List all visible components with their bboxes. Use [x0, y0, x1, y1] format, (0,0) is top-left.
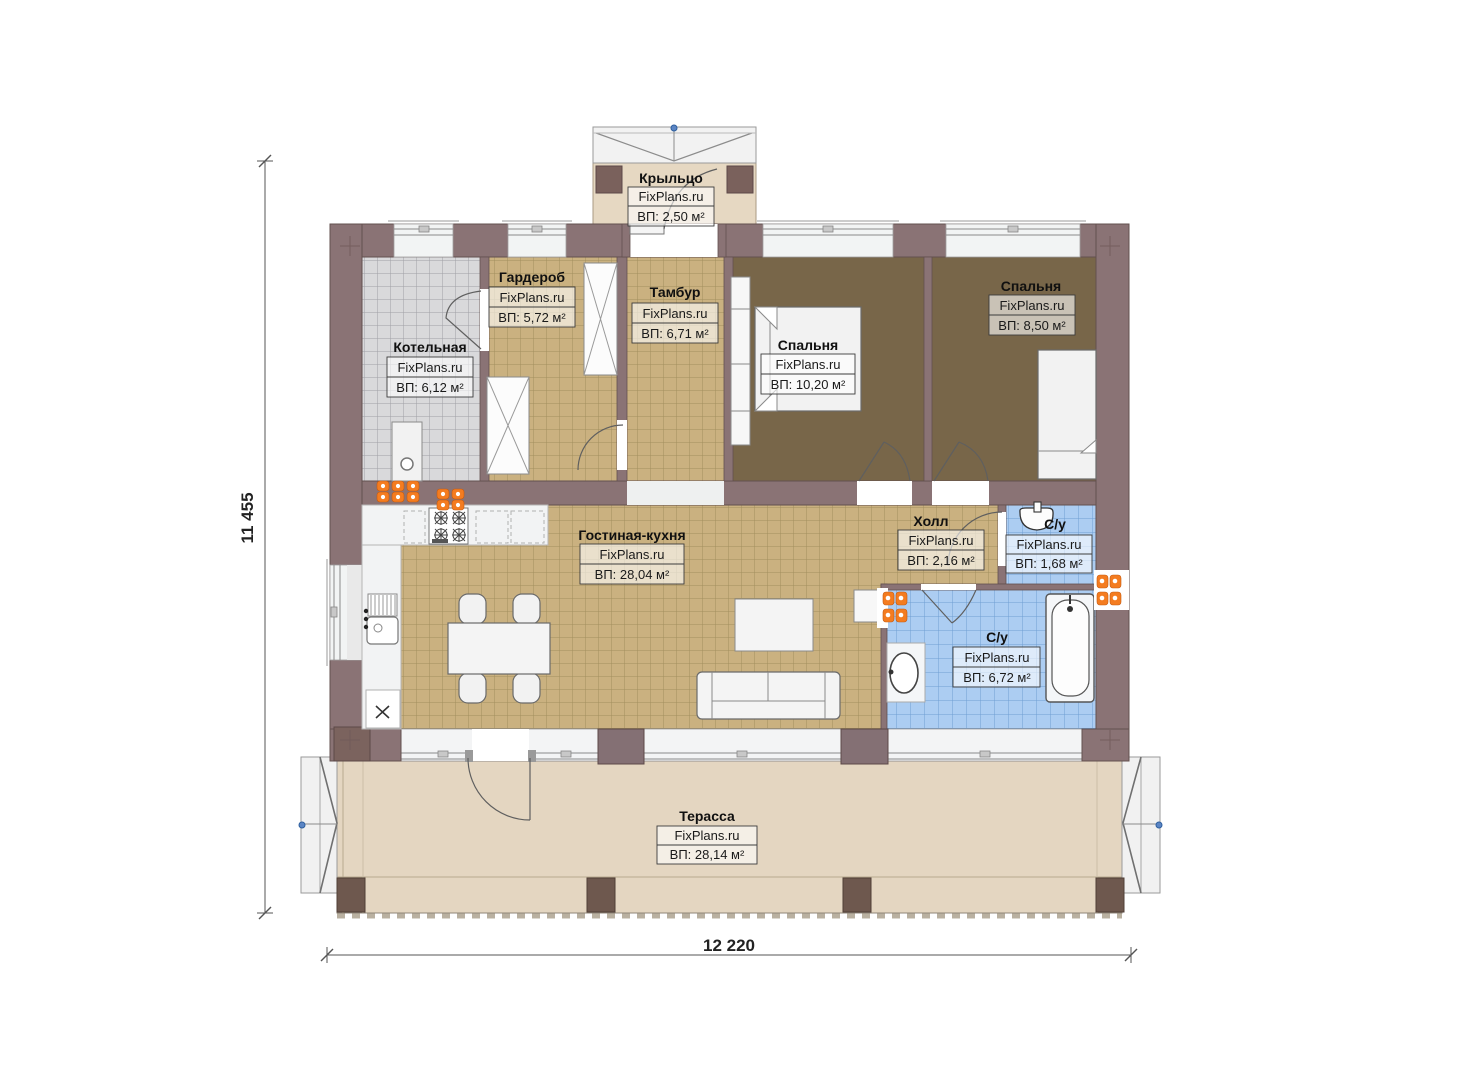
svg-text:ВП: 10,20 м²: ВП: 10,20 м²: [771, 377, 846, 392]
svg-text:ВП: 8,50 м²: ВП: 8,50 м²: [998, 318, 1066, 333]
svg-text:FixPlans.ru: FixPlans.ru: [397, 360, 462, 375]
svg-text:11 455: 11 455: [238, 492, 257, 543]
svg-text:С/у: С/у: [1044, 516, 1066, 532]
svg-text:Гостиная-кухня: Гостиная-кухня: [578, 527, 685, 543]
svg-text:ВП: 28,14 м²: ВП: 28,14 м²: [670, 847, 745, 862]
svg-text:FixPlans.ru: FixPlans.ru: [908, 533, 973, 548]
svg-text:ВП: 5,72 м²: ВП: 5,72 м²: [498, 310, 566, 325]
svg-text:Гардероб: Гардероб: [499, 269, 566, 285]
svg-text:ВП: 6,12 м²: ВП: 6,12 м²: [396, 380, 464, 395]
svg-text:Котельная: Котельная: [393, 339, 466, 355]
svg-text:ВП: 1,68 м²: ВП: 1,68 м²: [1015, 556, 1083, 571]
svg-text:FixPlans.ru: FixPlans.ru: [642, 306, 707, 321]
svg-text:FixPlans.ru: FixPlans.ru: [499, 290, 564, 305]
svg-text:С/у: С/у: [986, 629, 1008, 645]
svg-text:FixPlans.ru: FixPlans.ru: [1016, 537, 1081, 552]
svg-text:ВП: 2,16 м²: ВП: 2,16 м²: [907, 553, 975, 568]
svg-text:FixPlans.ru: FixPlans.ru: [999, 298, 1064, 313]
svg-text:FixPlans.ru: FixPlans.ru: [775, 357, 840, 372]
svg-text:FixPlans.ru: FixPlans.ru: [638, 189, 703, 204]
svg-text:FixPlans.ru: FixPlans.ru: [599, 547, 664, 562]
svg-text:12 220: 12 220: [703, 936, 755, 955]
svg-text:ВП: 6,71 м²: ВП: 6,71 м²: [641, 326, 709, 341]
svg-text:ВП: 6,72 м²: ВП: 6,72 м²: [963, 670, 1031, 685]
svg-text:Терасса: Терасса: [679, 808, 735, 824]
svg-text:FixPlans.ru: FixPlans.ru: [964, 650, 1029, 665]
svg-text:ВП: 2,50 м²: ВП: 2,50 м²: [637, 209, 705, 224]
svg-text:Спальня: Спальня: [1001, 278, 1061, 294]
svg-text:FixPlans.ru: FixPlans.ru: [674, 828, 739, 843]
svg-text:Тамбур: Тамбур: [650, 284, 701, 300]
svg-text:Крыльцо: Крыльцо: [639, 170, 703, 186]
svg-text:Холл: Холл: [913, 513, 948, 529]
svg-text:Спальня: Спальня: [778, 337, 838, 353]
svg-text:ВП: 28,04 м²: ВП: 28,04 м²: [595, 567, 670, 582]
